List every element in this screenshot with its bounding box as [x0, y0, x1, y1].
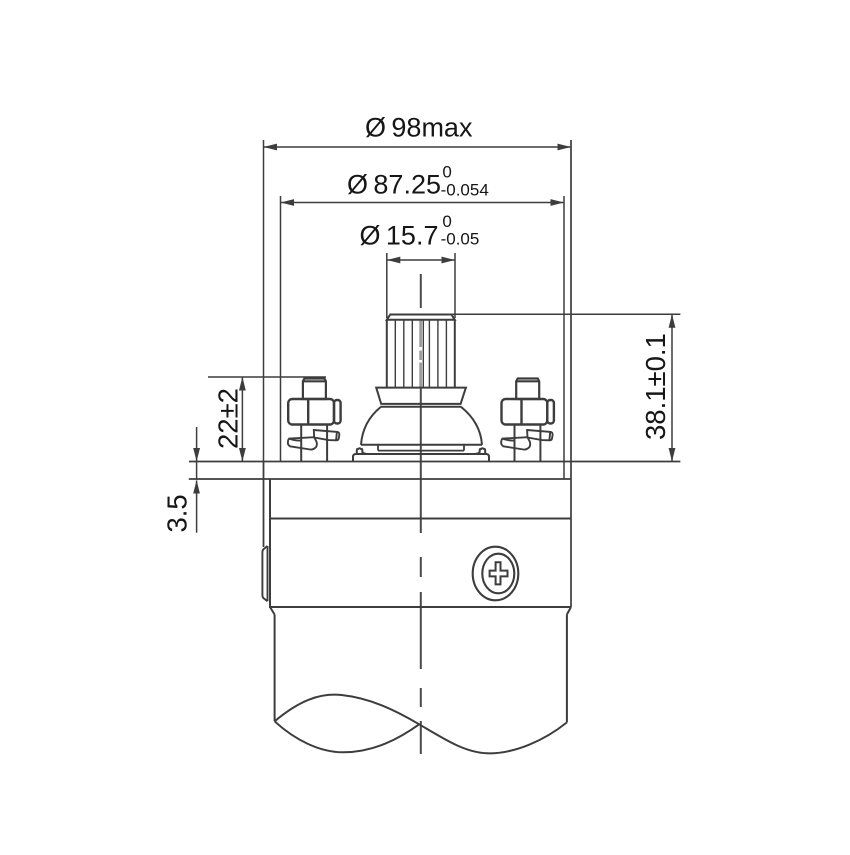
- svg-text:3.5: 3.5: [162, 494, 193, 532]
- svg-text:-0.054: -0.054: [441, 180, 489, 199]
- svg-text:22±2: 22±2: [213, 388, 244, 449]
- svg-text:Ø 98max: Ø 98max: [365, 113, 473, 143]
- svg-text:0: 0: [442, 163, 451, 182]
- svg-text:-0.05: -0.05: [441, 230, 480, 249]
- svg-text:Ø 87.25: Ø 87.25: [347, 170, 441, 200]
- svg-text:0: 0: [442, 212, 451, 231]
- svg-text:Ø 15.7: Ø 15.7: [360, 221, 439, 251]
- svg-text:38.1±0.1: 38.1±0.1: [640, 333, 671, 440]
